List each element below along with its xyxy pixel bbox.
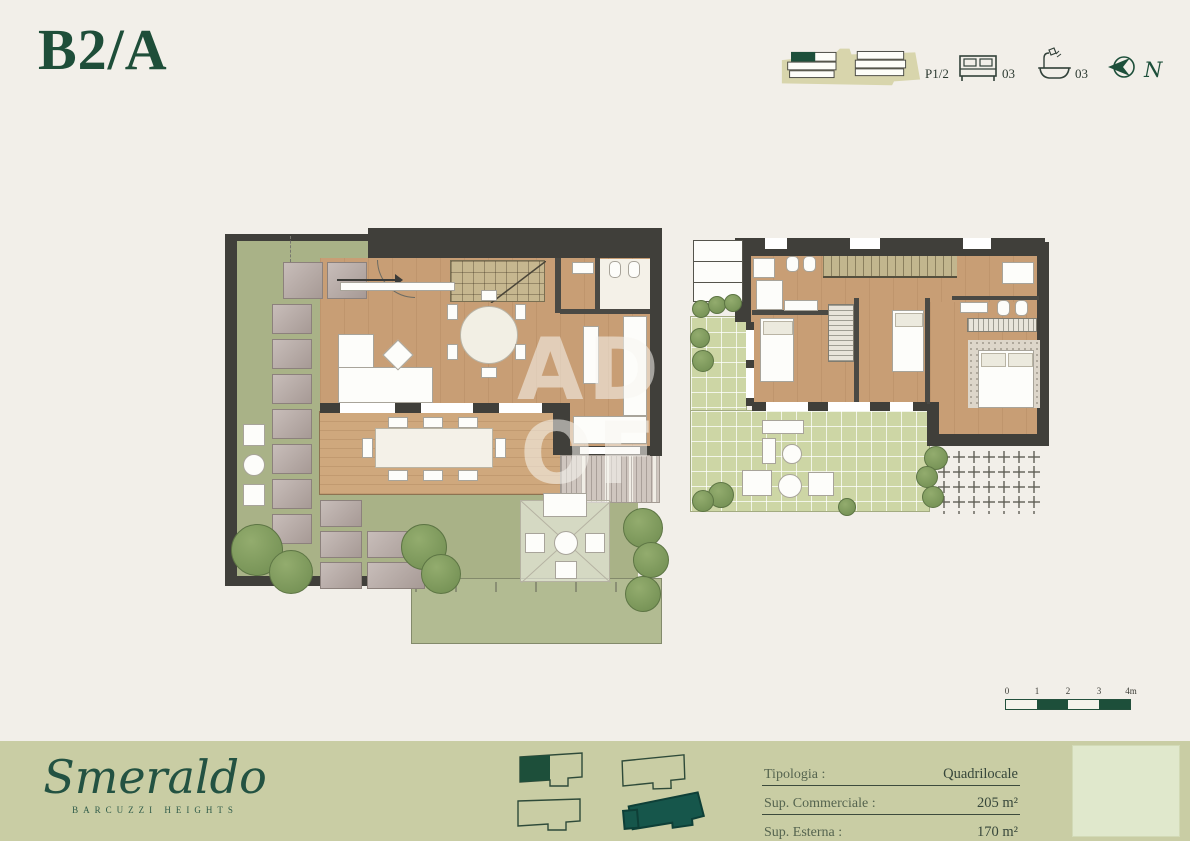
deck-chair: [423, 417, 443, 428]
bathrooms-count: 03: [1075, 66, 1088, 82]
brand-subtitle: BARCUZZI HEIGHTS: [30, 805, 280, 815]
wall: [854, 298, 859, 404]
deck-chair: [458, 470, 478, 481]
garden-paver: [272, 444, 312, 474]
entry-arrow: [337, 279, 397, 281]
spec-value: Quadrilocale: [943, 766, 1018, 783]
wall: [808, 402, 828, 411]
spec-label: Tipologia :: [764, 767, 825, 783]
chair: [447, 344, 458, 360]
brand-block: Smeraldo BARCUZZI HEIGHTS: [30, 753, 280, 815]
tree: [922, 486, 944, 508]
deck-dining-table: [375, 428, 493, 468]
wall: [225, 234, 237, 584]
spec-label: Sup. Esterna :: [764, 825, 842, 841]
sofa-chaise: [338, 334, 374, 368]
qr-placeholder-box: [1072, 745, 1180, 837]
wall: [870, 402, 890, 411]
spec-row-tipologia: Tipologia : Quadrilocale: [762, 757, 1020, 786]
scale-segment: [1068, 700, 1099, 709]
wall: [937, 434, 1045, 446]
scale-segment: [1037, 700, 1068, 709]
page-title: B2/A: [38, 16, 168, 83]
chair: [481, 290, 497, 301]
sofa: [338, 367, 433, 403]
garden-paver: [272, 409, 312, 439]
tree: [625, 576, 661, 612]
window-band: [765, 238, 787, 249]
wall: [555, 258, 561, 313]
garden-paver: [320, 562, 362, 589]
toilet: [786, 256, 799, 272]
wall: [746, 360, 754, 368]
window-band: [752, 402, 927, 411]
terrace-chair: [808, 472, 834, 496]
tree: [633, 542, 669, 578]
gazebo-chair: [555, 561, 577, 579]
window-band: [850, 238, 880, 249]
deck-chair: [423, 470, 443, 481]
watermark-line1: AD: [517, 328, 663, 412]
wall: [225, 234, 375, 241]
wardrobe: [967, 318, 1037, 332]
ground-floor-plan: AD OF: [225, 228, 662, 645]
tree: [623, 508, 663, 548]
deck-chair: [388, 417, 408, 428]
wall: [746, 398, 754, 406]
chair: [515, 304, 526, 320]
scale-label: 1: [1035, 686, 1040, 696]
wall: [746, 322, 754, 330]
garden-paver: [272, 304, 312, 334]
garden-seat: [243, 424, 265, 446]
bed-icon: [958, 52, 998, 82]
terrace-sofa: [762, 420, 804, 434]
wall: [473, 403, 499, 413]
sideboard: [340, 282, 455, 291]
garden-paver: [320, 531, 362, 558]
spec-row-sup-commerciale: Sup. Commerciale : 205 m²: [762, 786, 1020, 815]
terrace-chair: [742, 470, 772, 496]
shrub: [838, 498, 856, 516]
watermark: AD OF: [517, 328, 663, 508]
garden-table: [243, 454, 265, 476]
terrace-table: [782, 444, 802, 464]
scale-label: 0: [1005, 686, 1010, 696]
spec-row-sup-esterna: Sup. Esterna : 170 m²: [762, 815, 1020, 841]
boundary-dashed-line: [290, 236, 291, 262]
gazebo-table: [554, 531, 578, 555]
wall: [752, 402, 766, 411]
building-footprint-shapes: [510, 747, 720, 839]
single-bed: [760, 318, 794, 382]
scale-bar: 0 1 2 3 4m: [1005, 686, 1145, 712]
deck-chair: [362, 438, 373, 458]
gazebo-chair: [585, 533, 605, 553]
stair-void: [823, 256, 957, 278]
bidet: [628, 261, 640, 278]
wall: [560, 309, 650, 314]
wall: [927, 402, 939, 446]
sink: [960, 302, 988, 313]
bath-icon: [1036, 46, 1072, 84]
brand-name: Smeraldo: [30, 753, 280, 801]
garden-paver: [272, 374, 312, 404]
bedrooms-count: 03: [1002, 66, 1015, 82]
floor-label: P1/2: [925, 66, 949, 82]
sink: [784, 300, 818, 311]
wall: [395, 403, 421, 413]
footer-band: Smeraldo BARCUZZI HEIGHTS: [0, 741, 1190, 841]
spec-value: 205 m²: [977, 795, 1018, 812]
entry-paver: [283, 262, 323, 299]
watermark-line2: OF: [517, 412, 663, 496]
terrace-table: [778, 474, 802, 498]
wall: [368, 228, 662, 258]
scale-label: 2: [1066, 686, 1071, 696]
deck-chair: [495, 438, 506, 458]
round-dining-table: [460, 306, 518, 364]
wall: [595, 258, 600, 310]
bidet: [803, 256, 816, 272]
scale-label: 3: [1097, 686, 1102, 696]
staircase: [450, 260, 545, 302]
garden-paver: [272, 479, 312, 509]
shrub: [724, 294, 742, 312]
chair: [447, 304, 458, 320]
garden-paver: [320, 500, 362, 527]
garden-seat: [243, 484, 265, 506]
wall: [913, 402, 927, 411]
bathroom-floor: [599, 259, 650, 309]
deck-chair: [458, 417, 478, 428]
wall: [320, 403, 340, 413]
tree: [916, 466, 938, 488]
toilet: [609, 261, 621, 278]
planter-boxes: [693, 240, 743, 302]
terrace-sofa: [762, 438, 776, 464]
deck-chair: [388, 470, 408, 481]
tree: [421, 554, 461, 594]
garden-paver: [272, 339, 312, 369]
tree: [692, 490, 714, 512]
plan-sheet: B2/A P1/2 03: [0, 0, 1190, 841]
shower: [756, 280, 783, 310]
sink: [572, 262, 594, 274]
scale-segment: [1006, 700, 1037, 709]
scale-segment: [1099, 700, 1130, 709]
shrub: [692, 350, 714, 372]
spec-label: Sup. Commerciale :: [764, 796, 876, 812]
pergola-grid: [937, 450, 1041, 514]
toilet: [997, 300, 1010, 316]
chair: [481, 367, 497, 378]
cabinet: [753, 258, 775, 278]
scale-bar-segments: [1005, 699, 1131, 710]
desk: [1002, 262, 1034, 284]
gazebo: [520, 500, 610, 582]
building-locator-icon: [778, 42, 923, 88]
tree: [269, 550, 313, 594]
single-bed: [892, 310, 924, 372]
north-compass-icon: [1106, 52, 1142, 82]
north-label: N: [1144, 58, 1162, 82]
scale-label: 4m: [1125, 686, 1137, 696]
wall: [952, 296, 1039, 300]
wall: [925, 298, 930, 404]
upper-floor-plan: [690, 238, 1058, 520]
spec-value: 170 m²: [977, 824, 1018, 841]
wardrobe: [828, 304, 854, 362]
header-icons: P1/2 03 03 N: [778, 40, 1168, 90]
window-band: [963, 238, 991, 249]
specs-table: Tipologia : Quadrilocale Sup. Commercial…: [762, 757, 1020, 841]
bidet: [1015, 300, 1028, 316]
gazebo-chair: [525, 533, 545, 553]
shrub: [690, 328, 710, 348]
double-bed: [978, 350, 1034, 408]
